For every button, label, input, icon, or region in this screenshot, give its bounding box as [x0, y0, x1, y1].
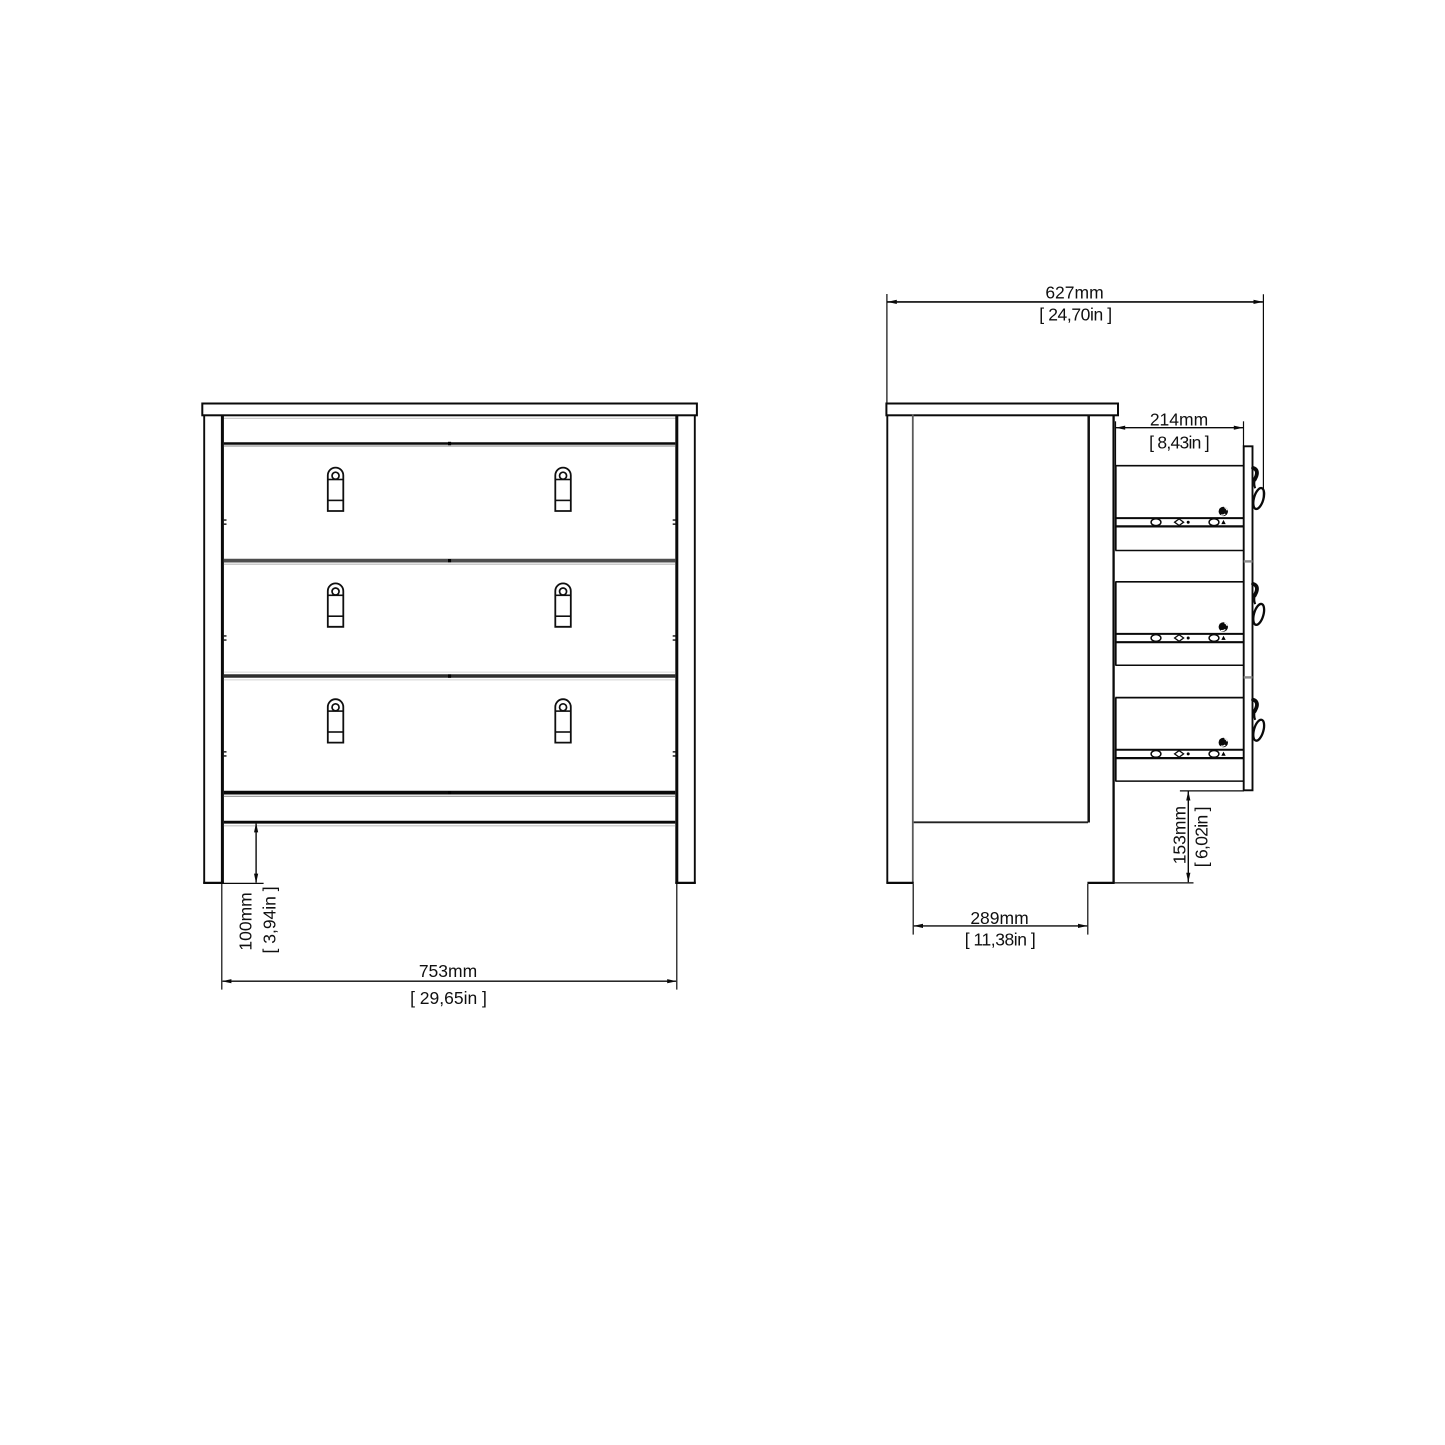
svg-text:289mm: 289mm [970, 908, 1028, 928]
svg-text:153mm: 153mm [1170, 806, 1190, 864]
svg-text:100mm: 100mm [235, 892, 255, 950]
svg-text:[ 11,38in ]: [ 11,38in ] [965, 930, 1036, 950]
svg-text:627mm: 627mm [1045, 283, 1103, 303]
svg-text:753mm: 753mm [419, 961, 477, 981]
svg-text:214mm: 214mm [1150, 410, 1208, 430]
svg-text:[ 24,70in ]: [ 24,70in ] [1039, 305, 1111, 325]
svg-text:[ 29,65in ]: [ 29,65in ] [410, 988, 487, 1008]
svg-text:[ 3,94in ]: [ 3,94in ] [260, 886, 280, 953]
svg-text:[ 6,02in ]: [ 6,02in ] [1191, 807, 1211, 867]
svg-text:[ 8,43in ]: [ 8,43in ] [1149, 432, 1209, 452]
